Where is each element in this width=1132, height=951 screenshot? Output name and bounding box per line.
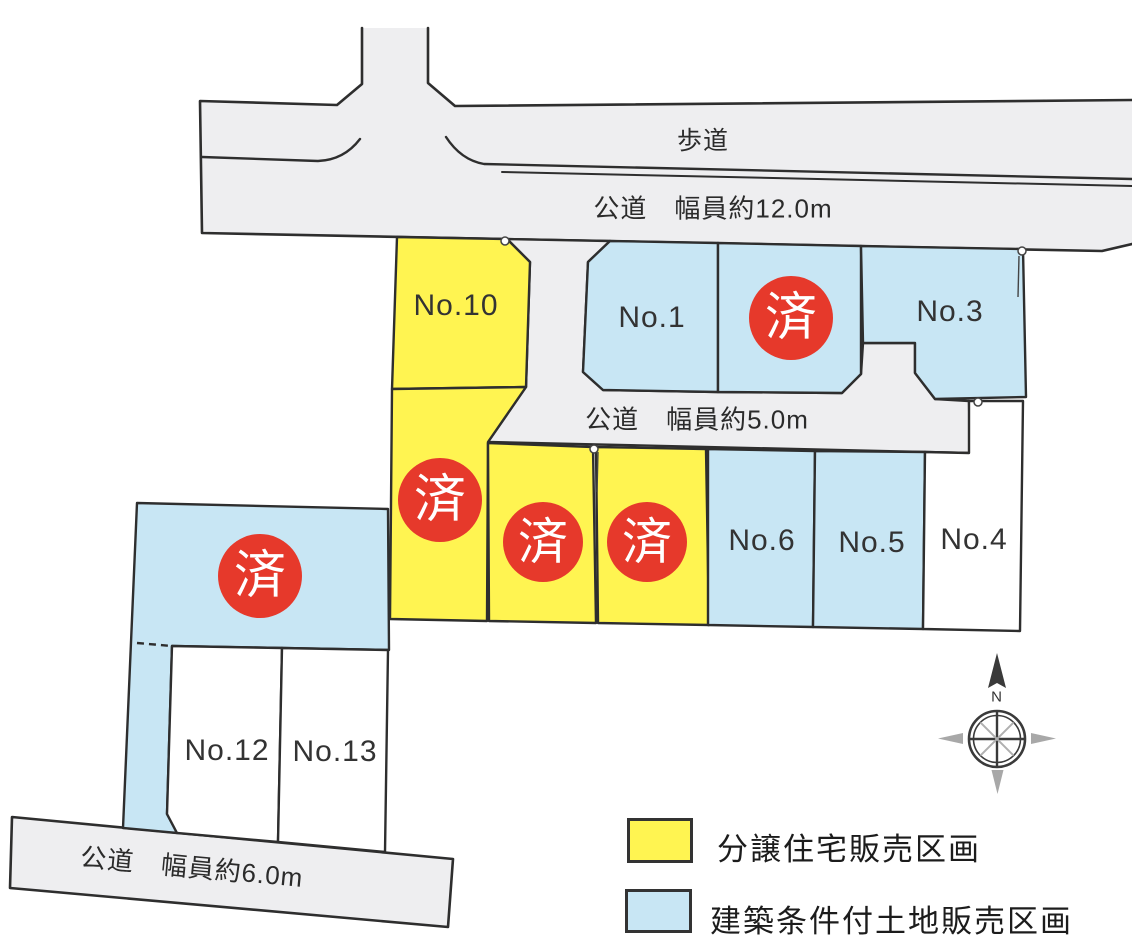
lot-no6-label: No.6 [728,524,795,558]
compass-north-label: N [991,689,1003,706]
lot-no13-label: No.13 [292,735,377,769]
setback-line-no3 [1018,256,1019,297]
compass-east-arrow [1031,733,1056,744]
sold-badge-lot2: 済 [749,276,833,360]
legend-swatch-house-sale [627,818,693,863]
setback-line-sold-b [597,452,598,492]
compass-south-arrow [992,770,1004,794]
sold-badge-lot-c: 済 [607,502,687,582]
site-plan-map: 歩道 公道 幅員約12.0m 公道 幅員約5.0m 公道 幅員約6.0m No.… [0,0,1132,951]
legend-label-conditional-land: 建築条件付土地販売区画 [710,896,1073,941]
boundary-pin-no4 [974,398,982,406]
sold-badge-lot-a: 済 [398,458,482,542]
lot-no3-label: No.3 [916,295,983,329]
sold-badge-lot-b: 済 [503,502,583,582]
lot-no5-label: No.5 [838,526,905,560]
parcel-map-drawing [0,0,1132,951]
lot-no1-label: No.1 [618,301,685,335]
boundary-pin-sold-b [590,445,598,453]
lot-no10-label: No.10 [413,289,498,323]
compass-north-arrow [988,653,1006,688]
boundary-pin-no10 [501,237,509,245]
legend-swatch-conditional-land [625,889,692,933]
compass-west-arrow [938,733,963,744]
sold-badge-flag-lot: 済 [218,534,302,618]
lot-no12-label: No.12 [184,734,269,768]
road-5m-label: 公道 幅員約5.0m [585,400,809,437]
sidewalk-label: 歩道 [677,121,729,157]
road-12m-label: 公道 幅員約12.0m [593,189,832,226]
road-12m-right-boundary [428,28,1132,106]
compass-icon [938,653,1056,794]
legend-label-house-sale: 分譲住宅販売区画 [717,824,981,869]
boundary-pin-no3 [1018,247,1026,255]
lot-no4-label: No.4 [940,523,1007,557]
